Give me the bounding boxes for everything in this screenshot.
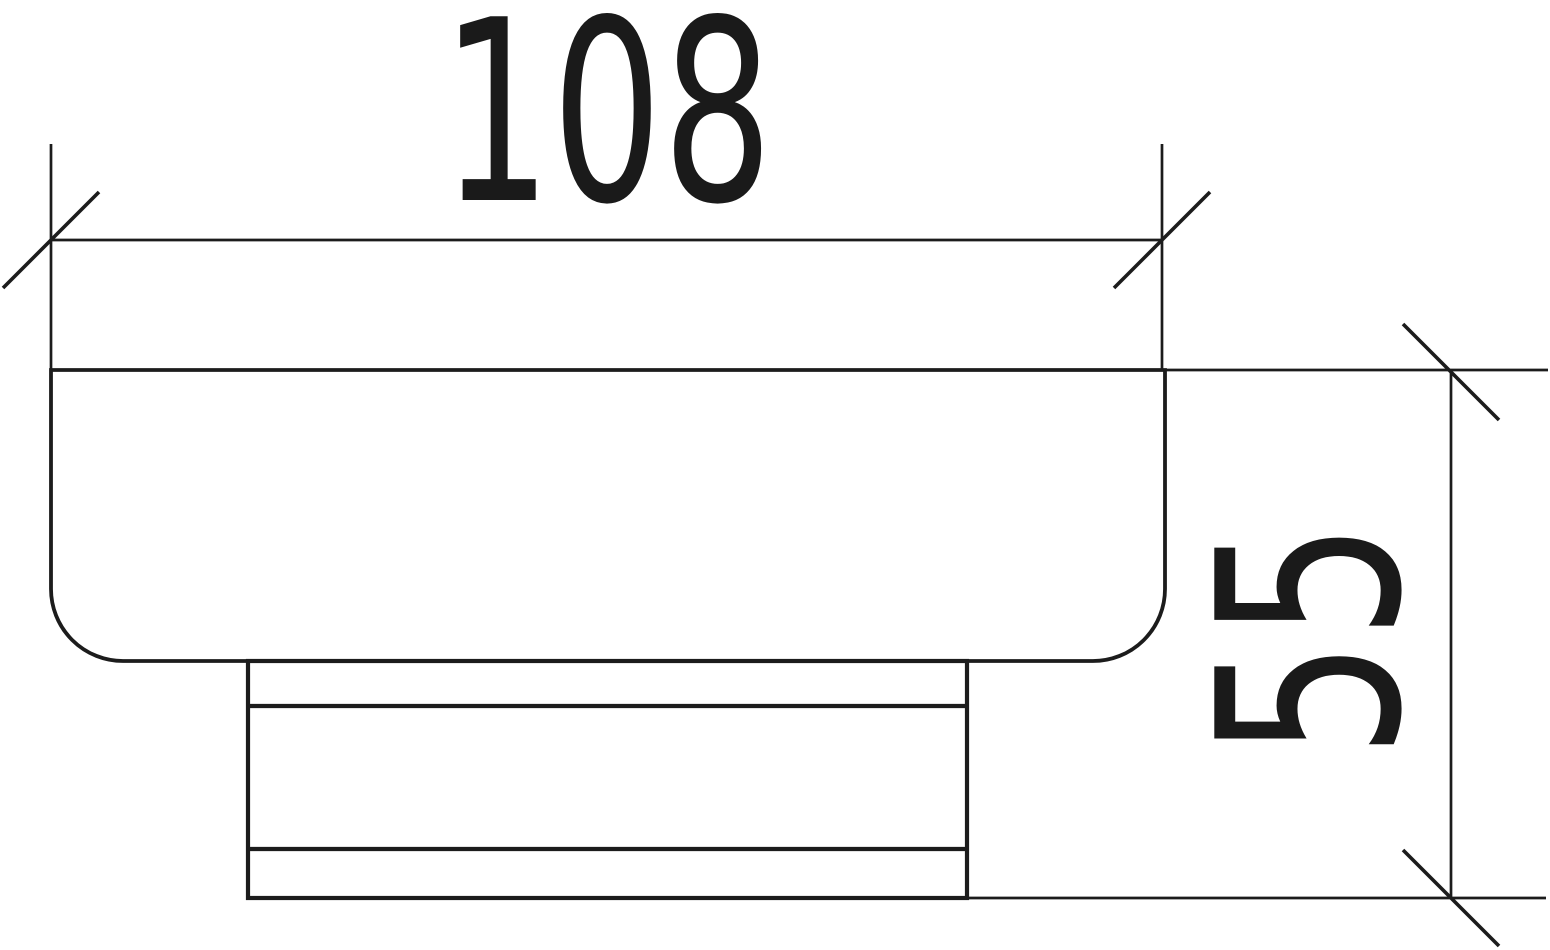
drawing-canvas: 108 55 — [0, 0, 1550, 950]
part-profile — [51, 370, 1165, 898]
shaft-body — [248, 661, 967, 898]
technical-drawing-svg: 108 55 — [0, 0, 1550, 950]
width-dimension-label: 108 — [441, 0, 773, 261]
height-dimension-label: 55 — [1165, 521, 1458, 758]
height-dimension: 55 — [967, 324, 1548, 946]
knurled-head-body — [51, 370, 1165, 661]
width-dimension: 108 — [3, 0, 1210, 370]
